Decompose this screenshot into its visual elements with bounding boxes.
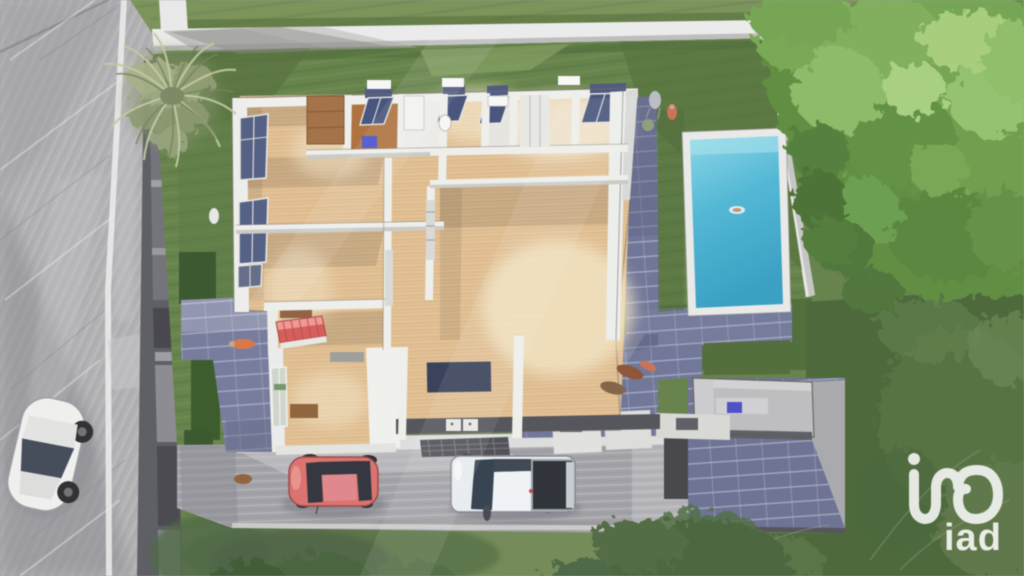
svg-text:iad: iad (944, 517, 1002, 559)
